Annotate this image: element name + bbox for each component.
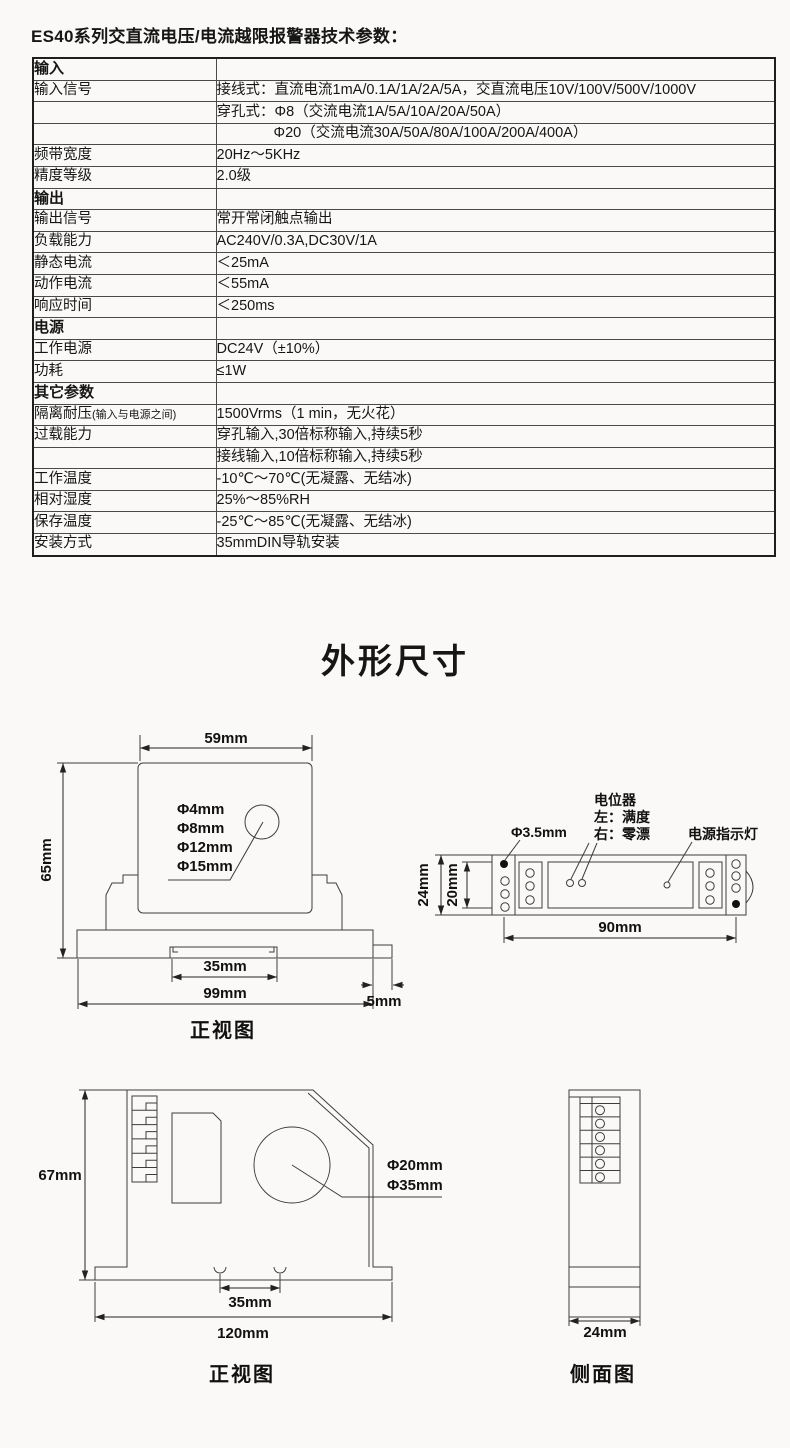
potentiometer-right <box>579 880 586 887</box>
spec-value: ＜25mA <box>216 253 775 275</box>
top-view-drawing: 电位器 左：满度 右：零漂 Φ3.5mm 电源指示灯 24mm 20mm 90m… <box>415 775 790 970</box>
label-window <box>172 1113 221 1203</box>
page-title: ES40系列交直流电压/电流越限报警器技术参数： <box>31 22 408 47</box>
table-row: 功耗≤1W <box>33 361 775 383</box>
dim-label-rail-35mm: 35mm <box>228 1294 271 1311</box>
power-led-label: 电源指示灯 <box>688 826 758 842</box>
terminal-screw <box>596 1159 605 1168</box>
label-window <box>548 862 693 908</box>
hole-label-12mm: Φ12mm <box>177 839 233 856</box>
section-title: 外形尺寸 <box>0 634 790 683</box>
spec-label <box>33 123 216 145</box>
spec-value: ≤1W <box>216 361 775 383</box>
side-tab <box>373 945 392 958</box>
din-rail-hook <box>214 1267 226 1273</box>
dim-label-5mm: 5mm <box>366 993 401 1010</box>
spec-label: 负载能力 <box>33 231 216 253</box>
spec-label: 频带宽度 <box>33 145 216 167</box>
table-row: 输入信号接线式：直流电流1mA/0.1A/1A/2A/5A，交直流电压10V/1… <box>33 80 775 102</box>
front-view-bottom-dimensions: 67mm Φ20mm Φ35mm 35mm 120mm <box>38 1090 442 1342</box>
table-row: 穿孔式：Φ8（交流电流1A/5A/10A/20A/50A） <box>33 102 775 124</box>
spec-value: 20Hz～5KHz <box>216 145 775 167</box>
table-row: 隔离耐压(输入与电源之间)1500Vrms（1 min，无火花） <box>33 404 775 426</box>
spec-value: 25%～85%RH <box>216 490 775 512</box>
spec-value: 2.0级 <box>216 166 775 188</box>
spec-label <box>33 102 216 124</box>
power-led <box>664 882 670 888</box>
front-view-bottom-drawing: 67mm Φ20mm Φ35mm 35mm 120mm 正视图 <box>35 1080 470 1390</box>
dim-label-99mm: 99mm <box>203 985 246 1002</box>
table-row: 输出信号常开常闭触点输出 <box>33 210 775 232</box>
spec-label-small: (输入与电源之间) <box>92 409 176 421</box>
spec-value: 1500Vrms（1 min，无火花） <box>216 404 775 426</box>
hole-label-35mm: Φ35mm <box>387 1177 443 1194</box>
table-row: 过载能力穿孔输入,30倍标称输入,持续5秒 <box>33 426 775 448</box>
spec-table: 输入输入信号接线式：直流电流1mA/0.1A/1A/2A/5A，交直流电压10V… <box>32 57 776 557</box>
top-view-dimensions: 24mm 20mm 90mm <box>415 855 736 943</box>
table-row: 工作电源DC24V（±10%） <box>33 339 775 361</box>
dim-label-65mm: 65mm <box>38 838 55 881</box>
side-view-drawing: 24mm 侧面图 <box>540 1080 750 1390</box>
din-rail-hook <box>274 1267 286 1273</box>
spec-value: ＜55mA <box>216 274 775 296</box>
spec-value: 常开常闭触点输出 <box>216 210 775 232</box>
table-row: 动作电流＜55mA <box>33 274 775 296</box>
spec-label: 安装方式 <box>33 534 216 556</box>
table-row: 保存温度-25℃～85℃(无凝露、无结冰) <box>33 512 775 534</box>
mounting-hole-label: Φ3.5mm <box>511 824 567 840</box>
spec-value: DC24V（±10%） <box>216 339 775 361</box>
hole-label-4mm: Φ4mm <box>177 801 224 818</box>
table-row: 其它参数 <box>33 382 775 404</box>
sensor-hole-circle <box>245 805 279 839</box>
spec-label: 输入 <box>33 58 216 80</box>
connector-bump <box>746 871 753 903</box>
spec-label: 输出信号 <box>33 210 216 232</box>
hole-label-20mm: Φ20mm <box>387 1157 443 1174</box>
spec-label: 静态电流 <box>33 253 216 275</box>
spec-value: 接线式：直流电流1mA/0.1A/1A/2A/5A，交直流电压10V/100V/… <box>216 80 775 102</box>
spec-label: 工作温度 <box>33 469 216 491</box>
potentiometer-left-label: 左：满度 <box>593 809 651 825</box>
dim-label-90mm: 90mm <box>598 919 641 936</box>
table-row: 静态电流＜25mA <box>33 253 775 275</box>
front-view-top-drawing: 59mm 65mm 35mm 99mm 5mm Φ4mm Φ8mm Φ12mm <box>35 725 420 1050</box>
table-row: 接线输入,10倍标称输入,持续5秒 <box>33 447 775 469</box>
spec-label: 精度等级 <box>33 166 216 188</box>
din-rail-slot <box>170 947 277 958</box>
dim-label-20mm: 20mm <box>444 863 461 906</box>
table-row: Φ20（交流电流30A/50A/80A/100A/200A/400A） <box>33 123 775 145</box>
table-row: 频带宽度20Hz～5KHz <box>33 145 775 167</box>
front-view-top-hole-list: Φ4mm Φ8mm Φ12mm Φ15mm <box>177 801 233 875</box>
potentiometer-right-label: 右：零漂 <box>593 826 650 842</box>
potentiometer-left <box>567 880 574 887</box>
table-row: 输出 <box>33 188 775 210</box>
spec-label: 相对湿度 <box>33 490 216 512</box>
spec-value: ＜250ms <box>216 296 775 318</box>
front-view-top-outline <box>77 763 392 958</box>
spec-label: 隔离耐压(输入与电源之间) <box>33 404 216 426</box>
spec-label: 工作电源 <box>33 339 216 361</box>
spec-value: Φ20（交流电流30A/50A/80A/100A/200A/400A） <box>216 123 775 145</box>
spec-value <box>216 188 775 210</box>
spec-value <box>216 58 775 80</box>
potentiometer-title: 电位器 <box>594 792 637 808</box>
mounting-hole-left <box>500 860 508 868</box>
spec-label: 动作电流 <box>33 274 216 296</box>
spec-value: -25℃～85℃(无凝露、无结冰) <box>216 512 775 534</box>
side-view-caption: 侧面图 <box>570 1362 636 1386</box>
spec-label: 其它参数 <box>33 382 216 404</box>
table-row: 负载能力AC240V/0.3A,DC30V/1A <box>33 231 775 253</box>
table-row: 电源 <box>33 318 775 340</box>
spec-value: AC240V/0.3A,DC30V/1A <box>216 231 775 253</box>
front-view-bottom-caption: 正视图 <box>209 1363 275 1386</box>
spec-value: 穿孔输入,30倍标称输入,持续5秒 <box>216 426 775 448</box>
spec-label <box>33 447 216 469</box>
top-view-callouts: 电位器 左：满度 右：零漂 Φ3.5mm 电源指示灯 <box>505 792 758 882</box>
dim-label-59mm: 59mm <box>204 730 247 747</box>
spec-value: -10℃～70℃(无凝露、无结冰) <box>216 469 775 491</box>
side-view-outline <box>569 1090 640 1317</box>
spec-value <box>216 382 775 404</box>
terminal-screw <box>596 1119 605 1128</box>
table-row: 输入 <box>33 58 775 80</box>
table-row: 安装方式35mmDIN导轨安装 <box>33 534 775 556</box>
terminal-screw <box>596 1173 605 1182</box>
spec-label: 输入信号 <box>33 80 216 102</box>
side-view-dimensions: 24mm <box>569 1317 640 1341</box>
datasheet-page: ES40系列交直流电压/电流越限报警器技术参数： 输入输入信号接线式：直流电流1… <box>0 0 790 1448</box>
dim-label-rail-35mm: 35mm <box>203 958 246 975</box>
front-view-top-caption: 正视图 <box>190 1019 256 1042</box>
spec-value: 35mmDIN导轨安装 <box>216 534 775 556</box>
terminal-screw <box>596 1146 605 1155</box>
dim-label-24mm: 24mm <box>415 863 432 906</box>
hole-label-8mm: Φ8mm <box>177 820 224 837</box>
spec-label: 功耗 <box>33 361 216 383</box>
terminal-screw <box>596 1106 605 1115</box>
spec-label: 保存温度 <box>33 512 216 534</box>
table-row: 响应时间＜250ms <box>33 296 775 318</box>
dim-label-67mm: 67mm <box>38 1167 81 1184</box>
terminal-screw <box>596 1133 605 1142</box>
spec-value: 穿孔式：Φ8（交流电流1A/5A/10A/20A/50A） <box>216 102 775 124</box>
dim-label-24mm: 24mm <box>583 1324 626 1341</box>
spec-label: 响应时间 <box>33 296 216 318</box>
spec-table-body: 输入输入信号接线式：直流电流1mA/0.1A/1A/2A/5A，交直流电压10V… <box>33 58 775 556</box>
hole-label-15mm: Φ15mm <box>177 858 233 875</box>
spec-label: 输出 <box>33 188 216 210</box>
mounting-hole-right <box>732 900 740 908</box>
top-view-outline <box>492 855 753 915</box>
table-row: 相对湿度25%～85%RH <box>33 490 775 512</box>
spec-value: 接线输入,10倍标称输入,持续5秒 <box>216 447 775 469</box>
spec-label: 电源 <box>33 318 216 340</box>
spec-value <box>216 318 775 340</box>
spec-label: 过载能力 <box>33 426 216 448</box>
dim-label-120mm: 120mm <box>217 1325 269 1342</box>
table-row: 精度等级2.0级 <box>33 166 775 188</box>
table-row: 工作温度-10℃～70℃(无凝露、无结冰) <box>33 469 775 491</box>
